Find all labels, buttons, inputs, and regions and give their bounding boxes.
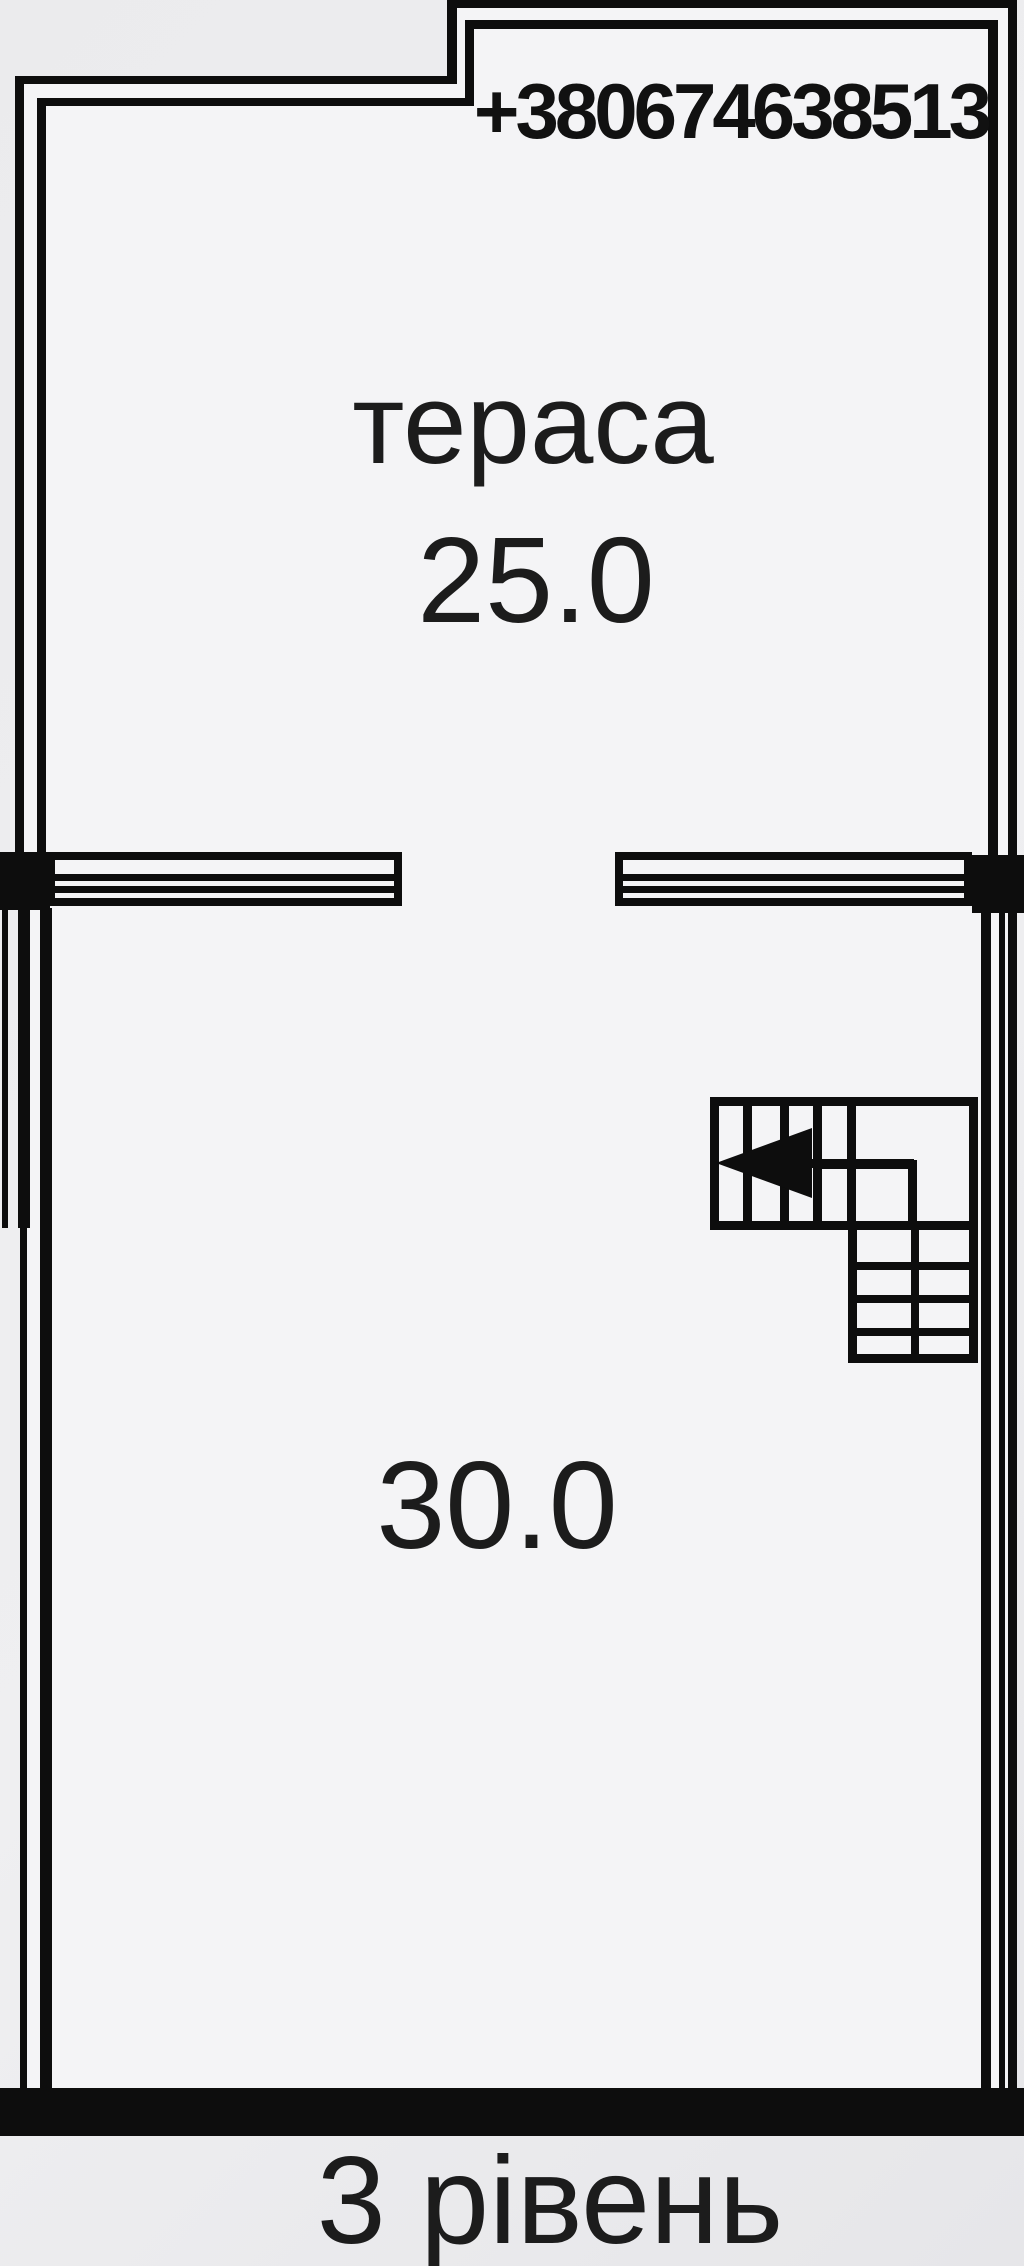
wall-right-inner-upper <box>988 20 998 913</box>
terrace-area-value: 25.0 <box>417 512 654 648</box>
stairs-landing-line-v <box>908 1160 917 1230</box>
wall-left-inner-lower <box>40 1228 52 2090</box>
wall-top-right-inner <box>465 20 998 29</box>
wall-left-outer-upper <box>15 76 24 856</box>
main-room: 30.0 <box>376 1437 617 1575</box>
middle-wall-left-pier <box>0 852 50 910</box>
window-right-cap-left <box>615 852 623 906</box>
phone-number: +380674638513 <box>474 67 990 155</box>
floor-area <box>24 8 1008 2088</box>
main-room-area-value: 30.0 <box>376 1437 617 1575</box>
window-left-line1 <box>47 852 402 860</box>
wall-bottom <box>0 2088 1024 2136</box>
window-right-line3 <box>615 886 972 893</box>
wall-notch-outer <box>447 0 457 84</box>
wall-left-outer-lower <box>20 1228 27 2090</box>
window-left-line4 <box>47 898 402 906</box>
window-left-line2 <box>47 874 402 881</box>
wall-right-outer <box>1008 0 1017 2090</box>
wall-top-right-outer <box>447 0 1017 8</box>
stairs-lower-divider <box>911 1230 919 1363</box>
terrace-room-label: тераса <box>352 361 714 488</box>
window-right-line2 <box>615 874 972 881</box>
stairs-arrow-tail <box>806 1159 914 1168</box>
wall-top-left-outer <box>15 76 457 84</box>
wall-right-inner-lower <box>981 913 991 2088</box>
wall-notch-inner <box>465 20 474 106</box>
window-right-line4 <box>615 898 972 906</box>
stairs-right-border <box>969 1097 978 1230</box>
floor-plan-page: +380674638513 тераса 25.0 30.0 3 рівень <box>0 0 1024 2266</box>
middle-wall-right-pier <box>972 855 1024 913</box>
wall-right-window-glass <box>999 913 1005 2088</box>
wall-left-inner-upper <box>37 98 46 856</box>
wall-left-window-glass <box>18 908 30 1228</box>
window-right-cap-right <box>964 852 972 906</box>
wall-top-left-inner <box>37 98 474 106</box>
level-label: 3 рівень <box>317 2132 783 2266</box>
window-left-line3 <box>47 886 402 893</box>
wall-left-window-inner <box>40 908 52 1228</box>
window-left-cap-left <box>47 852 55 906</box>
floor-plan-svg: +380674638513 тераса 25.0 30.0 3 рівень <box>0 0 1024 2266</box>
wall-left-window-edge <box>2 908 8 1228</box>
window-right-line1 <box>615 852 972 860</box>
window-left-cap-right <box>394 852 402 906</box>
